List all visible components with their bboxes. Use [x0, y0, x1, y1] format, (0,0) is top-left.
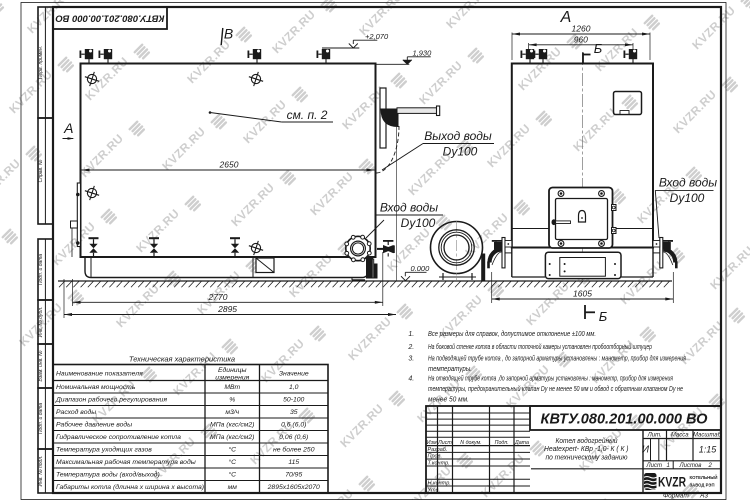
svg-text:2895: 2895 [217, 304, 237, 314]
svg-text:Инв. № дубл.: Инв. № дубл. [38, 307, 44, 338]
svg-text:Подп.: Подп. [495, 440, 509, 446]
svg-text:Значение: Значение [279, 371, 309, 378]
svg-text:Наименование показателя: Наименование показателя [56, 371, 143, 378]
svg-text:Подп. и дата: Подп. и дата [38, 403, 44, 435]
svg-text:2770: 2770 [208, 292, 228, 302]
svg-text:Лит.: Лит. [647, 432, 662, 438]
svg-text:50-100: 50-100 [283, 397, 304, 404]
svg-text:°С: °С [228, 458, 236, 466]
svg-text:Максимальная рабочая температу: Максимальная рабочая температура воды [56, 458, 196, 466]
svg-text:см. п. 2: см. п. 2 [287, 108, 328, 122]
svg-text:Техническая характеристика: Техническая характеристика [129, 355, 235, 364]
svg-text:0,06 (0,6): 0,06 (0,6) [279, 434, 308, 441]
svg-text:0.000: 0.000 [411, 264, 431, 273]
svg-text:0,6 (6,0): 0,6 (6,0) [281, 422, 306, 429]
svg-text:Габариты котла (длинна х ширин: Габариты котла (длинна х ширина х высота… [56, 483, 204, 491]
svg-text:1:15: 1:15 [699, 444, 718, 454]
svg-text:Dy100: Dy100 [401, 216, 436, 230]
svg-text:А: А [560, 9, 572, 26]
svg-text:А: А [63, 120, 73, 136]
svg-text:Dy100: Dy100 [670, 191, 705, 205]
svg-text:2650: 2650 [219, 160, 239, 170]
svg-text:Диапазон рабочего регулировани: Диапазон рабочего регулирования [55, 396, 167, 404]
svg-text:Перв. примен.: Перв. примен. [38, 46, 44, 79]
svg-text:Лист: Лист [646, 463, 662, 469]
svg-text:Инв. № подл.: Инв. № подл. [38, 455, 44, 486]
svg-text:Б: Б [594, 41, 603, 56]
svg-text:менее 50 мм.: менее 50 мм. [428, 397, 469, 404]
svg-text:МПа (кгс/см2): МПа (кгс/см2) [210, 434, 254, 441]
svg-text:Б: Б [599, 309, 608, 324]
svg-text:КВТУ.080.201.00.000 ВО: КВТУ.080.201.00.000 ВО [55, 12, 165, 23]
svg-text:2: 2 [708, 463, 713, 469]
svg-text:На боковой стенке котла в обла: На боковой стенке котла в области топочн… [428, 343, 652, 351]
svg-text:Подп. и дата: Подп. и дата [38, 254, 44, 286]
svg-text:На отводящей трубе котла ,до з: На отводящей трубе котла ,до запорной ар… [428, 374, 673, 382]
svg-text:1: 1 [667, 463, 670, 469]
svg-text:2.: 2. [407, 344, 414, 351]
svg-text:Изм: Изм [427, 440, 437, 446]
svg-text:°С: °С [228, 446, 236, 454]
svg-text:м3/ч: м3/ч [225, 409, 239, 416]
svg-text:°С: °С [228, 471, 236, 479]
svg-text:измерения: измерения [215, 375, 249, 382]
svg-text:Выход воды: Выход воды [424, 129, 492, 143]
svg-text:температуры.: температуры. [428, 366, 472, 373]
svg-text:Пров.: Пров. [428, 454, 443, 460]
svg-text:Утв.: Утв. [427, 487, 441, 493]
svg-text:Т.контр.: Т.контр. [428, 460, 450, 466]
svg-text:мм: мм [228, 484, 238, 491]
svg-text:МВт: МВт [224, 384, 240, 391]
svg-text:Лист: Лист [437, 440, 452, 446]
svg-text:Дата: Дата [514, 440, 529, 446]
svg-text:Температура уходящих газов: Температура уходящих газов [56, 446, 152, 454]
svg-text:2895х1605х2070: 2895х1605х2070 [267, 484, 320, 491]
svg-text:Масштаб: Масштаб [693, 432, 722, 438]
svg-text:Гидравлическое сопротивление к: Гидравлическое сопротивление котла [56, 433, 181, 441]
svg-text:не более 250: не более 250 [273, 446, 315, 454]
svg-text:Разраб.: Разраб. [428, 447, 448, 453]
svg-text:3.: 3. [408, 356, 414, 363]
svg-text:В: В [224, 26, 233, 42]
svg-text:1,930: 1,930 [413, 49, 433, 58]
svg-text:1605: 1605 [573, 289, 592, 299]
svg-text:И: И [642, 445, 650, 456]
svg-text:Температура воды (вход/выход): Температура воды (вход/выход) [56, 471, 160, 479]
svg-text:960: 960 [574, 34, 588, 44]
svg-text:Вход воды: Вход воды [380, 201, 438, 215]
svg-text:Вход воды: Вход воды [659, 176, 717, 190]
svg-text:Листов: Листов [679, 463, 702, 469]
svg-text:115: 115 [288, 459, 299, 466]
svg-text:Взам. инв. №: Взам. инв. № [38, 350, 44, 382]
svg-text:КВТУ.080.201.00.000 ВО: КВТУ.080.201.00.000 ВО [541, 411, 708, 428]
svg-text:Масса: Масса [671, 432, 689, 438]
svg-text:по техническому заданию: по техническому заданию [546, 452, 628, 461]
svg-text:МПа (кгс/см2): МПа (кгс/см2) [210, 422, 254, 429]
svg-text:Справ. №: Справ. № [38, 159, 44, 182]
svg-text:+2,070: +2,070 [365, 32, 389, 41]
svg-text:ЗАВОД РЭП: ЗАВОД РЭП [690, 483, 715, 489]
svg-text:35: 35 [290, 409, 298, 416]
svg-text:Номинальная мощность: Номинальная мощность [56, 384, 136, 391]
svg-text:%: % [229, 397, 235, 404]
svg-text:70/95: 70/95 [285, 472, 302, 479]
svg-text:1,0: 1,0 [289, 384, 299, 391]
svg-text:температуры, предохранительный: температуры, предохранительный клапан Dy… [428, 385, 683, 393]
svg-text:Единицы: Единицы [218, 366, 246, 374]
svg-text:Н.контр.: Н.контр. [428, 480, 451, 486]
svg-text:4.: 4. [408, 375, 414, 382]
svg-text:N докум.: N докум. [460, 440, 481, 446]
svg-text:Все размеры для справок, допус: Все размеры для справок, допустимое откл… [428, 330, 596, 338]
svg-text:На подводящей трубе котла ,: На подводящей трубе котла , до запорной … [428, 355, 686, 363]
svg-text:Dy100: Dy100 [443, 145, 478, 159]
svg-text:1260: 1260 [572, 24, 591, 34]
svg-text:Формат: Формат [663, 492, 689, 499]
svg-text:Расход воды: Расход воды [56, 408, 96, 416]
svg-text:1.: 1. [408, 331, 414, 338]
svg-text:Рабочее давление воды: Рабочее давление воды [56, 421, 132, 429]
svg-text:А3: А3 [699, 492, 708, 499]
svg-text:KVZR: KVZR [658, 475, 686, 490]
